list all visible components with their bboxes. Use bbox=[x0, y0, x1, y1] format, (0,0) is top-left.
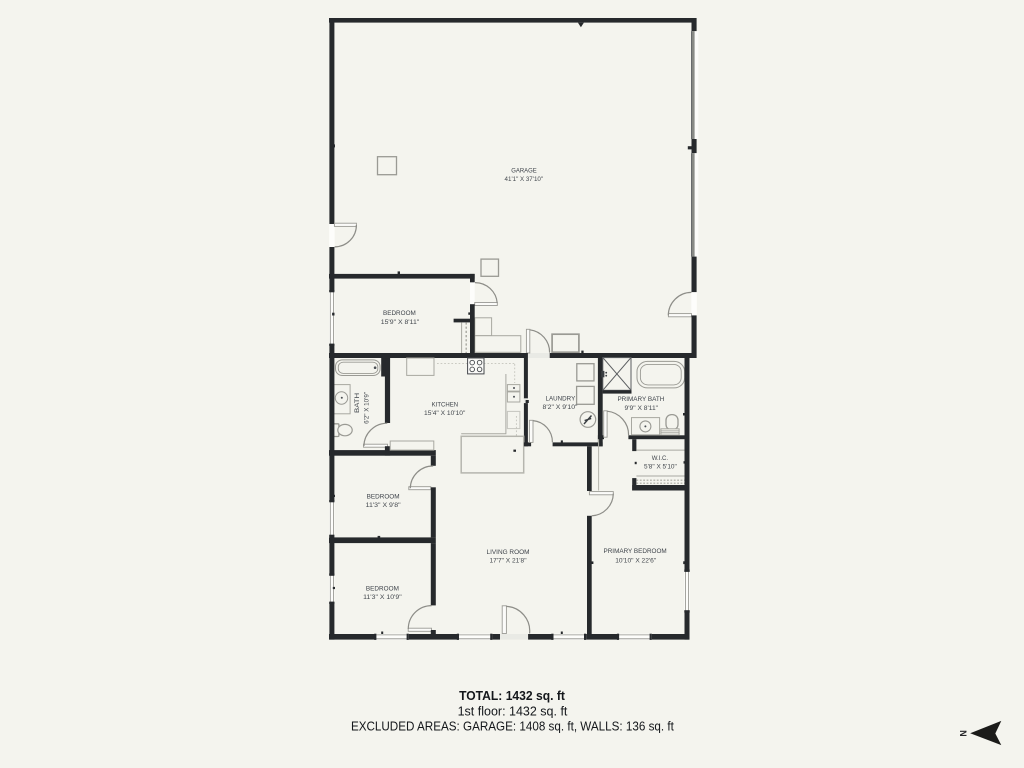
svg-text:11'3" X 9'8": 11'3" X 9'8" bbox=[366, 502, 402, 509]
svg-text:9'9" X 8'11": 9'9" X 8'11" bbox=[625, 405, 659, 412]
svg-text:BEDROOM: BEDROOM bbox=[367, 494, 400, 501]
svg-text:BEDROOM: BEDROOM bbox=[383, 310, 416, 317]
svg-text:41'1" X 37'10": 41'1" X 37'10" bbox=[505, 176, 544, 183]
svg-text:10'10" X 22'6": 10'10" X 22'6" bbox=[615, 557, 657, 564]
svg-text:6'2" X 10'9": 6'2" X 10'9" bbox=[364, 391, 371, 424]
svg-text:BEDROOM: BEDROOM bbox=[366, 585, 399, 592]
svg-text:KITCHEN: KITCHEN bbox=[432, 402, 459, 409]
svg-text:PRIMARY BEDROOM: PRIMARY BEDROOM bbox=[604, 548, 667, 555]
svg-text:GARAGE: GARAGE bbox=[511, 167, 537, 174]
svg-text:LAUNDRY: LAUNDRY bbox=[546, 395, 576, 402]
svg-text:5'8" X 5'10": 5'8" X 5'10" bbox=[644, 464, 677, 471]
svg-text:TOTAL: 1432 sq. ft: TOTAL: 1432 sq. ft bbox=[459, 689, 566, 703]
svg-text:8'2" X 9'10": 8'2" X 9'10" bbox=[543, 404, 579, 411]
svg-text:N: N bbox=[959, 730, 969, 737]
svg-text:11'3" X 10'9": 11'3" X 10'9" bbox=[363, 594, 402, 601]
svg-text:LIVING ROOM: LIVING ROOM bbox=[487, 549, 530, 556]
svg-text:15'4" X 10'10": 15'4" X 10'10" bbox=[424, 410, 466, 417]
svg-text:17'7" X 21'8": 17'7" X 21'8" bbox=[489, 558, 527, 565]
svg-text:W.I.C.: W.I.C. bbox=[652, 455, 669, 462]
svg-text:PRIMARY BATH: PRIMARY BATH bbox=[617, 396, 664, 403]
svg-text:1st floor: 1432 sq. ft: 1st floor: 1432 sq. ft bbox=[458, 705, 568, 719]
svg-text:15'9" X 8'11": 15'9" X 8'11" bbox=[381, 319, 420, 326]
svg-text:EXCLUDED AREAS: GARAGE: 1408 s: EXCLUDED AREAS: GARAGE: 1408 sq. ft, WAL… bbox=[351, 719, 674, 733]
svg-text:BATH: BATH bbox=[354, 393, 361, 413]
